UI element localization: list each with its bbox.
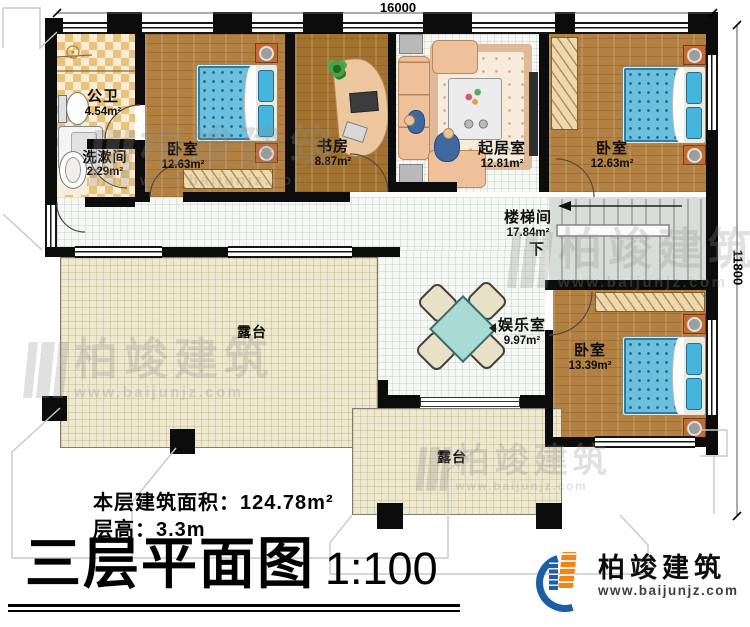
window xyxy=(575,22,688,34)
stair-down-label: 下 xyxy=(522,241,552,259)
company-logo: 柏竣建筑 www.baijunjz.com xyxy=(536,546,739,606)
pillow xyxy=(686,378,702,410)
wall-segment xyxy=(303,12,343,34)
bed-sheet xyxy=(672,68,684,142)
window xyxy=(252,22,303,34)
window xyxy=(63,22,107,34)
wall-segment xyxy=(45,22,57,205)
room-label-washroom: 洗漱间 2.29m² xyxy=(65,149,145,180)
company-name: 柏竣建筑 xyxy=(598,554,739,584)
wall-segment xyxy=(87,139,135,149)
company-logo-icon xyxy=(536,546,590,606)
wall-segment xyxy=(706,22,718,55)
drawing-title-text: 三层平面图 xyxy=(25,536,315,592)
armchair xyxy=(432,40,478,74)
title-underline xyxy=(8,604,460,607)
bed-sheet xyxy=(244,66,256,140)
nightstand-icon xyxy=(255,143,278,163)
room-label-livingroom: 起居室 12.81m² xyxy=(462,140,542,172)
terrace-left-floor xyxy=(60,257,378,448)
wardrobe xyxy=(551,37,578,130)
wall-segment xyxy=(423,12,472,34)
floor-area-label: 本层建筑面积： xyxy=(93,492,240,514)
pillow xyxy=(686,343,702,375)
pillow xyxy=(686,72,702,104)
room-label-bedroom1: 卧室 12.63m² xyxy=(143,141,223,173)
company-website: www.baijunjz.com xyxy=(598,583,739,598)
terrace-left-label: 露台 xyxy=(212,324,292,341)
nightstand-icon xyxy=(683,45,706,65)
wall-segment xyxy=(520,395,545,408)
nightstand-icon xyxy=(683,314,706,334)
side-table xyxy=(399,34,423,54)
window xyxy=(228,246,352,258)
wall-segment xyxy=(45,247,75,257)
sliding-door xyxy=(420,397,520,407)
wardrobe xyxy=(595,292,705,312)
wall-segment xyxy=(85,197,135,207)
drawing-scale: 1:100 xyxy=(325,545,438,592)
wall-segment xyxy=(388,34,396,192)
wall-segment xyxy=(555,12,575,34)
floor-area-line: 本层建筑面积：124.78m² xyxy=(93,486,334,515)
room-label-study: 书房 8.87m² xyxy=(293,138,373,170)
pillow xyxy=(258,105,274,137)
wall-segment xyxy=(213,12,252,34)
nightstand-icon xyxy=(683,145,706,165)
stairwell-floor xyxy=(549,197,706,283)
dimension-width-label: 16000 xyxy=(368,0,428,15)
window xyxy=(706,320,718,415)
wall-segment xyxy=(545,437,595,447)
coffee-table xyxy=(448,78,502,140)
sofa xyxy=(398,56,430,160)
bed-sheet xyxy=(672,338,684,414)
dimension-height-label: 11800 xyxy=(731,238,746,298)
plant-icon xyxy=(326,58,348,80)
column xyxy=(377,503,403,529)
window xyxy=(142,22,213,34)
wall-segment xyxy=(352,247,400,257)
column xyxy=(42,396,67,421)
wall-segment xyxy=(107,12,142,34)
computer-monitor-icon xyxy=(349,91,379,113)
window xyxy=(706,55,718,130)
wall-segment xyxy=(706,130,718,320)
wall-segment xyxy=(706,415,718,455)
room-label-bedroom3: 卧室 13.39m² xyxy=(550,342,630,374)
pillow xyxy=(258,70,274,102)
wall-segment xyxy=(390,182,457,192)
wall-segment xyxy=(162,247,228,257)
nightstand-icon xyxy=(683,418,706,438)
room-label-bedroom2: 卧室 12.63m² xyxy=(572,140,652,172)
wall-segment xyxy=(545,280,716,290)
window xyxy=(595,436,695,448)
wall-segment xyxy=(183,192,350,202)
column xyxy=(536,503,562,529)
window xyxy=(45,205,57,247)
floor-plan-canvas: 公卫 4.54m² 洗漱间 2.29m² 卧室 12.63m² 书房 8.87m… xyxy=(0,0,750,627)
person-figure xyxy=(434,132,460,162)
wall-segment xyxy=(378,395,420,408)
window xyxy=(343,22,423,34)
person-figure xyxy=(407,110,425,134)
window xyxy=(472,22,555,34)
pillow xyxy=(686,107,702,139)
terrace-bottom-label: 露台 xyxy=(412,449,492,466)
wall-segment xyxy=(135,192,150,202)
room-label-bathroom: 公卫 4.54m² xyxy=(63,88,143,120)
drawing-title: 三层平面图 1:100 xyxy=(25,536,438,592)
column xyxy=(170,429,195,454)
floor-area-value: 124.78m² xyxy=(240,492,334,514)
title-underline xyxy=(8,610,460,612)
nightstand-icon xyxy=(255,43,278,63)
room-label-stairwell: 楼梯间 17.84m² xyxy=(488,209,568,241)
wall-segment xyxy=(695,437,718,447)
window xyxy=(75,246,162,258)
